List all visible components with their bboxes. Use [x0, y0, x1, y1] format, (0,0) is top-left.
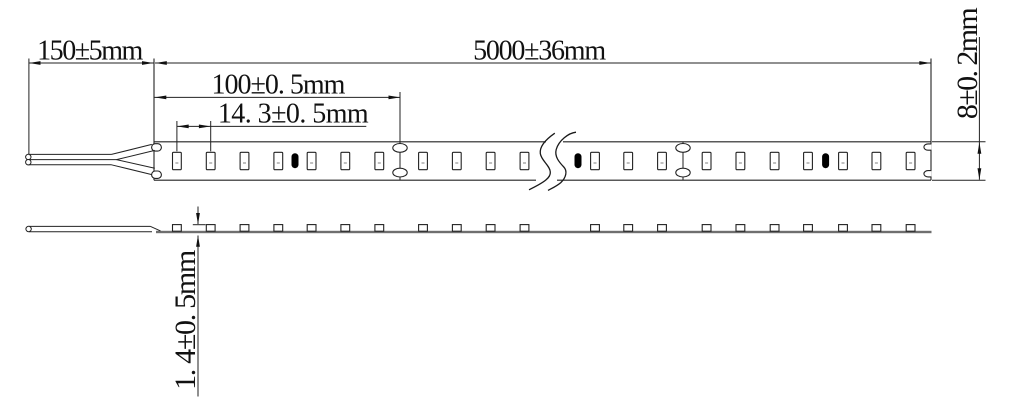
svg-text:14. 3±0. 5mm: 14. 3±0. 5mm: [218, 99, 369, 130]
svg-text:8±0. 2mm: 8±0. 2mm: [951, 8, 984, 120]
svg-text:5000±36mm: 5000±36mm: [473, 35, 606, 66]
svg-text:100±0. 5mm: 100±0. 5mm: [212, 70, 346, 101]
svg-text:1. 4±0. 5mm: 1. 4±0. 5mm: [169, 250, 202, 390]
svg-text:150±5mm: 150±5mm: [37, 35, 143, 66]
